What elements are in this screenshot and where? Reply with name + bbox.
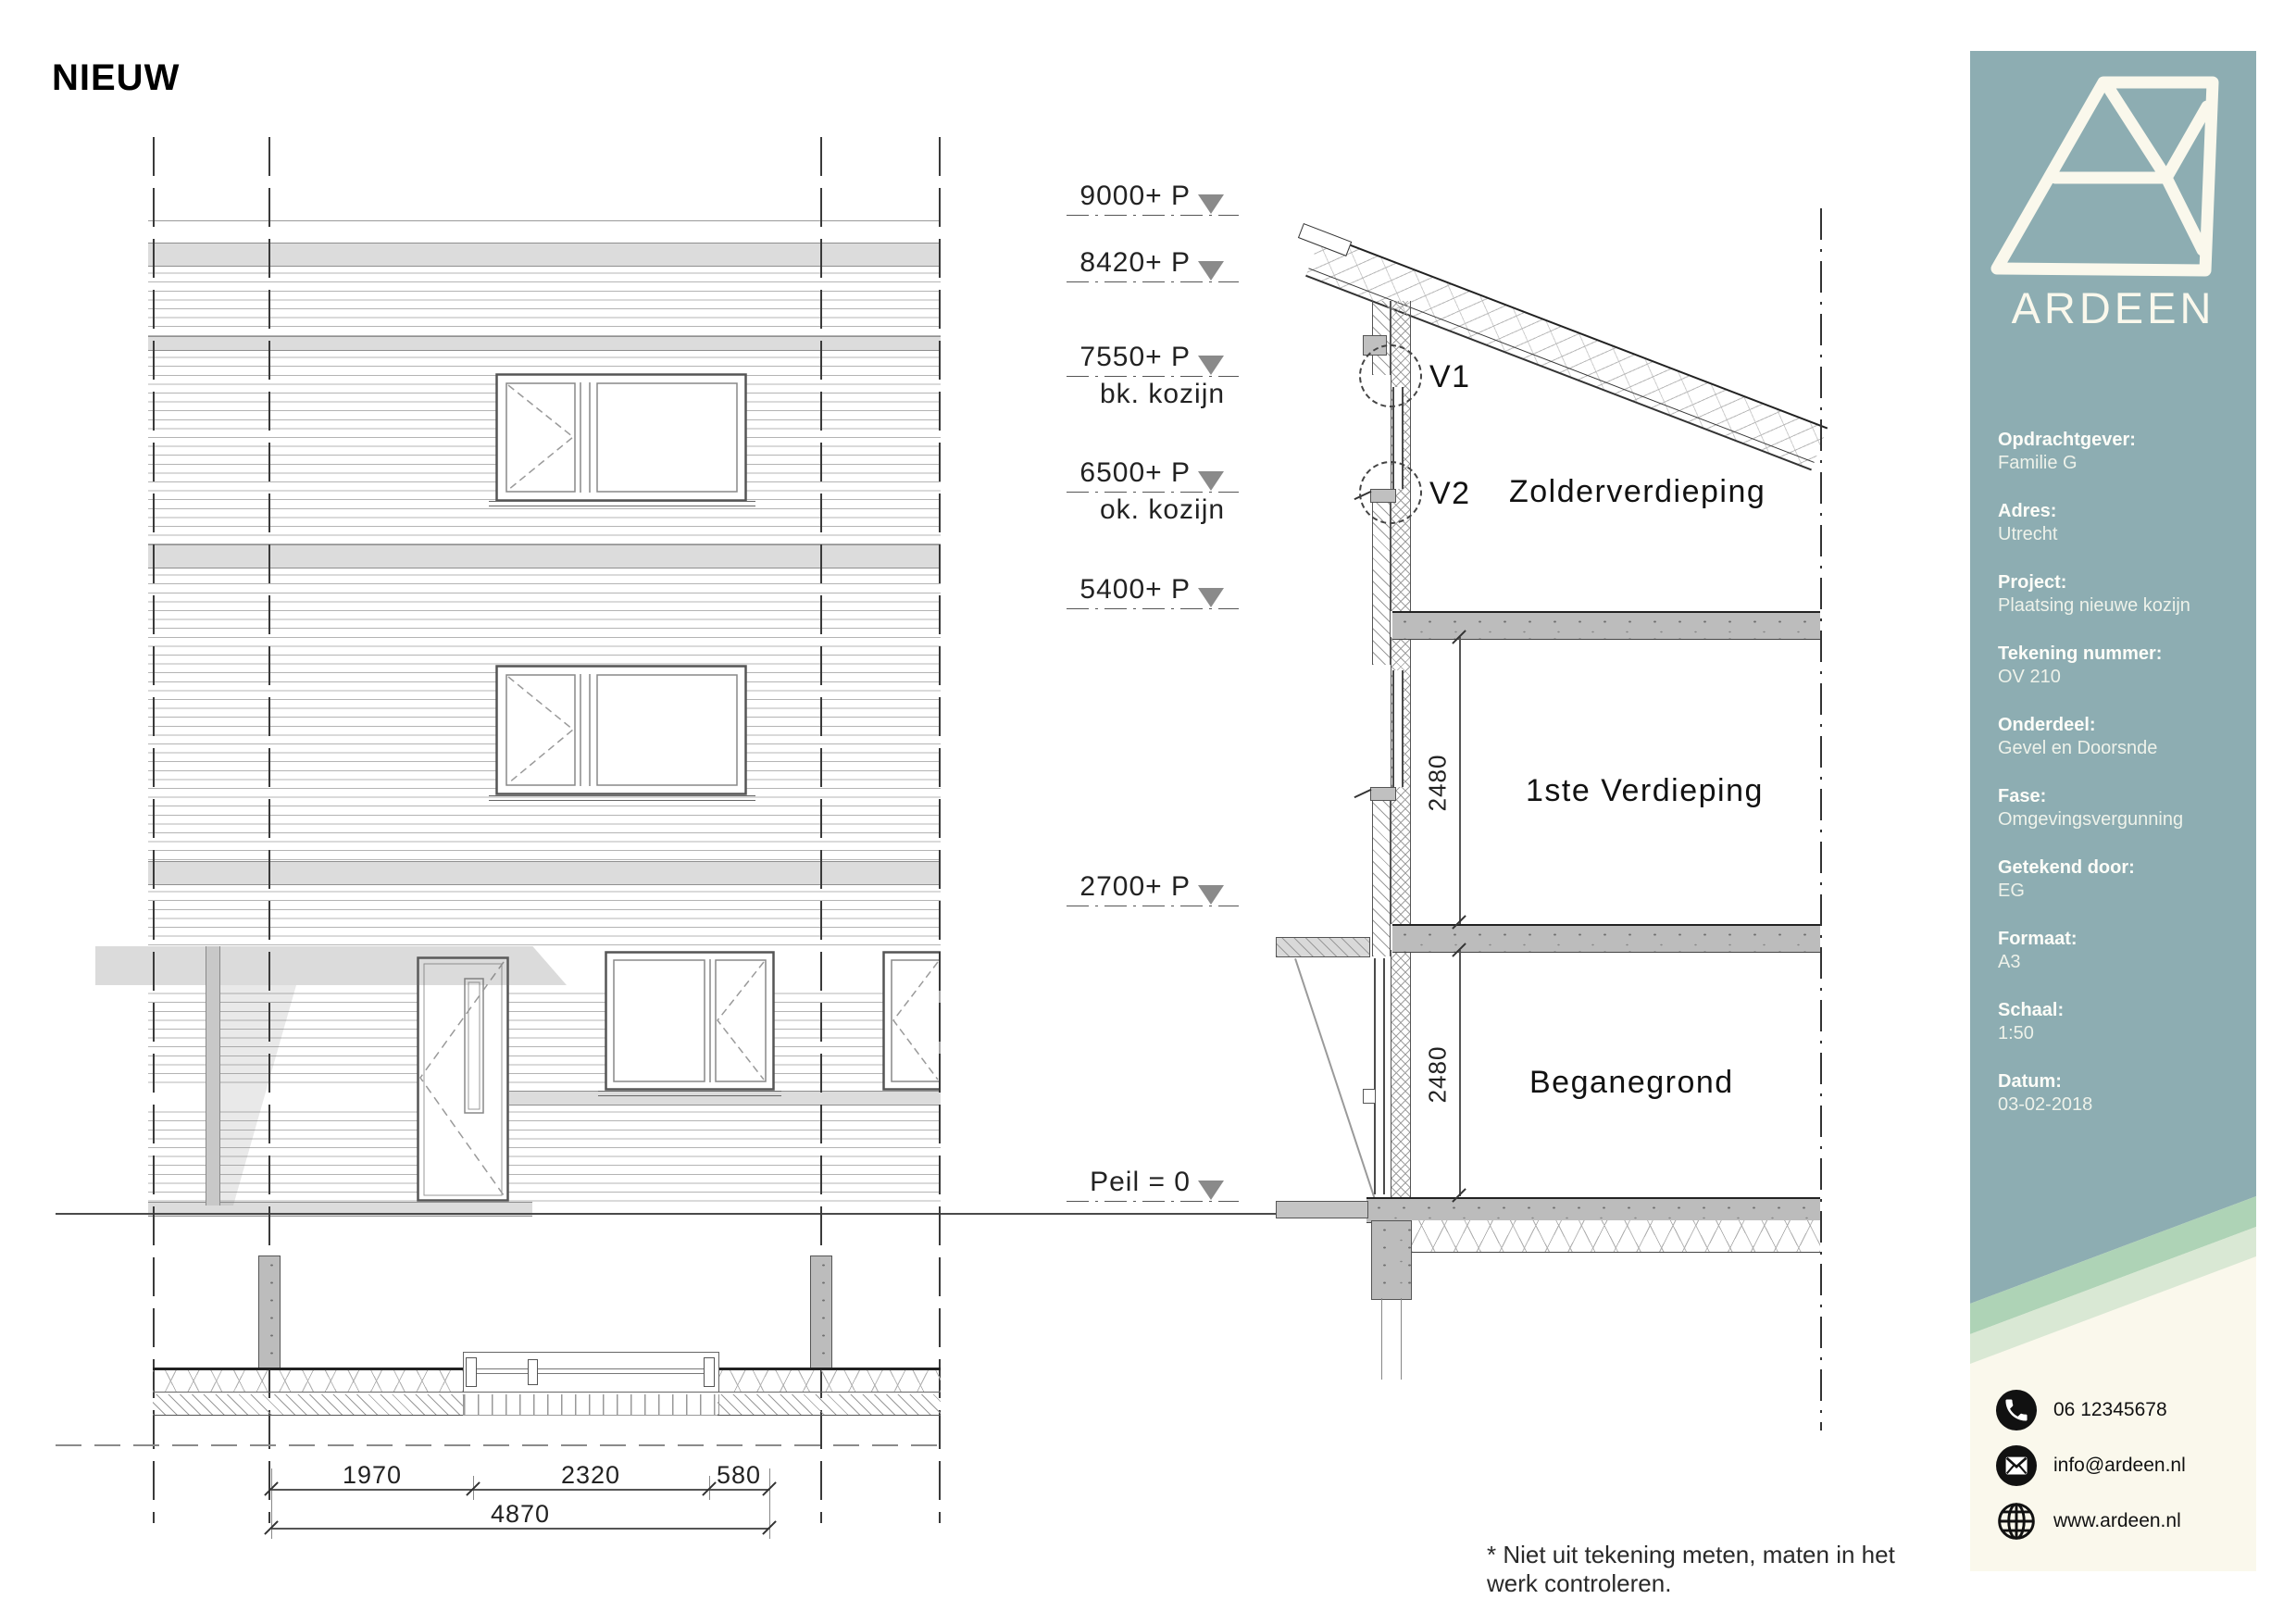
plan-hatch-strip	[153, 1394, 463, 1416]
info-opdrachtgever: Opdrachtgever:Familie G	[1998, 429, 2239, 475]
window-sill	[489, 795, 755, 801]
info-getekend-door: Getekend door:EG	[1998, 856, 2239, 903]
info-datum: Datum:03-02-2018	[1998, 1070, 2239, 1117]
grid-line-section	[1820, 208, 1822, 1430]
title-block: ARDEEN Opdrachtgever:Familie G Adres:Utr…	[1970, 51, 2256, 1571]
dim-label: 580	[717, 1461, 761, 1490]
section-canopy	[1276, 937, 1370, 957]
facade-window-partial	[882, 951, 941, 1091]
globe-icon	[1996, 1501, 2037, 1542]
level-triangle-icon	[1198, 194, 1224, 214]
info-formaat: Formaat:A3	[1998, 928, 2239, 974]
slab-first-floor	[1392, 924, 1820, 953]
plan-column	[810, 1255, 832, 1369]
contact-phone: 06 12345678	[1996, 1389, 2167, 1431]
entrance-stoop	[1276, 1201, 1368, 1218]
level-triangle-icon	[1198, 356, 1224, 375]
wall-inner-leaf	[1391, 950, 1411, 1197]
facade-window-attic	[495, 373, 747, 502]
level-triangle-icon	[1198, 261, 1224, 281]
brand-name: ARDEEN	[1970, 282, 2256, 333]
info-project: Project:Plaatsing nieuwe kozijn	[1998, 571, 2239, 618]
plan-kozijn-glass	[472, 1368, 709, 1374]
slab-ground-floor	[1366, 1197, 1820, 1223]
plan-column	[258, 1255, 281, 1369]
label-first: 1ste Verdieping	[1526, 773, 1764, 809]
phone-icon	[1996, 1390, 2037, 1430]
level-triangle-icon	[1198, 885, 1224, 905]
rain-pipe	[206, 946, 220, 1206]
detail-label-v2: V2	[1429, 476, 1471, 512]
sill-drip	[1354, 789, 1372, 798]
plan-dashed-line	[56, 1444, 941, 1446]
facade-canopy	[95, 946, 567, 985]
foundation-insulation	[1389, 1220, 1820, 1253]
project-info: Opdrachtgever:Familie G Adres:Utrecht Pr…	[1998, 429, 2239, 1142]
grid-line	[939, 137, 941, 1523]
wall-outer-leaf	[1372, 500, 1391, 665]
info-onderdeel: Onderdeel:Gevel en Doorsnde	[1998, 714, 2239, 760]
level-triangle-icon	[1198, 1181, 1224, 1200]
foundation-pile	[1381, 1298, 1402, 1380]
label-attic: Zolderverdieping	[1509, 474, 1766, 510]
facade-window-first	[495, 665, 747, 795]
info-adres: Adres:Utrecht	[1998, 500, 2239, 546]
info-tekening-nummer: Tekening nummer:OV 210	[1998, 643, 2239, 689]
level-triangle-icon	[1198, 588, 1224, 607]
plan-hatch-strip	[717, 1394, 941, 1416]
slab-attic-floor	[1392, 611, 1820, 640]
level-6500: 6500+ P ok. kozijn	[1067, 459, 1239, 493]
dim-label: 1970	[343, 1461, 402, 1490]
plan-wall-insulation	[153, 1370, 463, 1393]
window-glazing-first	[1392, 670, 1404, 787]
level-8420: 8420+ P	[1067, 249, 1239, 282]
facade-door	[417, 956, 509, 1202]
window-sill	[598, 1091, 781, 1096]
detail-label-v1: V1	[1429, 359, 1471, 395]
ardeen-logo	[1970, 51, 2256, 310]
plan-kozijn-jamb	[528, 1359, 538, 1385]
level-7550: 7550+ P bk. kozijn	[1067, 344, 1239, 377]
level-2700: 2700+ P	[1067, 873, 1239, 906]
plan-kozijn-jamb	[704, 1357, 715, 1387]
level-triangle-icon	[1198, 471, 1224, 491]
dim-label: 2320	[561, 1461, 620, 1490]
page-title: NIEUW	[52, 57, 180, 99]
grid-line	[153, 137, 155, 1523]
level-5400: 5400+ P	[1067, 576, 1239, 609]
plan-sill-ticks	[463, 1394, 719, 1416]
drawing-sheet: NIEUW	[0, 0, 2296, 1624]
window-sill-first	[1370, 787, 1396, 801]
detail-circle-v2	[1359, 461, 1422, 524]
wall-outer-leaf	[1372, 798, 1391, 956]
email-icon	[1996, 1445, 2037, 1486]
dim-label-2480-upper: 2480	[1423, 755, 1452, 812]
level-9000: 9000+ P	[1067, 182, 1239, 216]
detail-circle-v1	[1359, 344, 1422, 407]
dim-line-vertical	[1459, 950, 1461, 1196]
door-swing-line	[1295, 958, 1376, 1198]
info-fase: Fase:Omgevingsvergunning	[1998, 785, 2239, 831]
level-peil: Peil = 0	[1067, 1168, 1239, 1202]
info-schaal: Schaal:1:50	[1998, 999, 2239, 1045]
dim-line-vertical	[1459, 637, 1461, 924]
plan-kozijn-jamb	[466, 1357, 477, 1387]
foundation-pier	[1371, 1220, 1412, 1300]
facade-window-ground	[605, 951, 775, 1091]
contact-email: info@ardeen.nl	[1996, 1444, 2186, 1487]
contact-website: www.ardeen.nl	[1996, 1500, 2181, 1543]
dim-label-total: 4870	[491, 1500, 550, 1529]
disclaimer-note: * Niet uit tekening meten, maten in het …	[1487, 1541, 1922, 1598]
door-handle	[1363, 1089, 1376, 1104]
ground-line	[56, 1213, 1285, 1215]
door-section	[1374, 958, 1385, 1194]
dim-label-2480-lower: 2480	[1423, 1046, 1452, 1104]
window-sill	[489, 501, 755, 506]
label-ground: Beganegrond	[1529, 1065, 1734, 1101]
plan-wall-insulation	[717, 1370, 941, 1393]
